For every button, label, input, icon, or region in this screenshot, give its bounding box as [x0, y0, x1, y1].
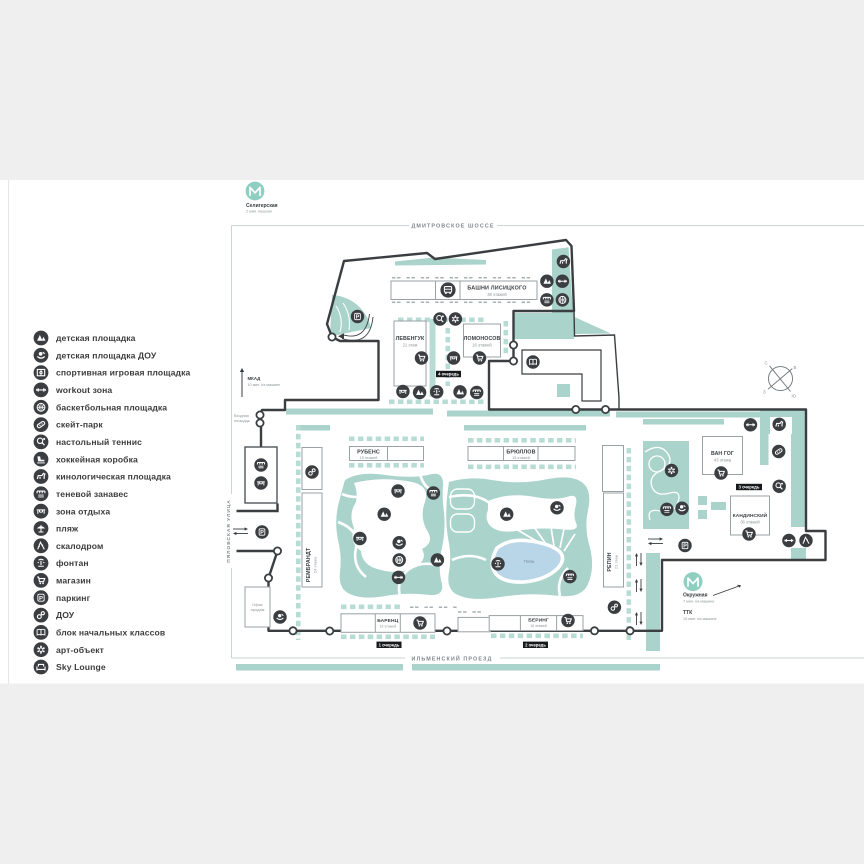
svg-text:21 этаж: 21 этаж	[614, 555, 619, 570]
svg-text:ДОУ: ДОУ	[56, 610, 75, 620]
svg-text:workout зона: workout зона	[55, 385, 112, 395]
svg-text:хоккейная коробка: хоккейная коробка	[56, 454, 138, 464]
svg-text:ДМИТРОВСКОЕ ШОССЕ: ДМИТРОВСКОЕ ШОССЕ	[411, 224, 494, 230]
svg-text:РЕПИН: РЕПИН	[607, 552, 613, 571]
svg-text:2 мин. пешком: 2 мин. пешком	[246, 210, 272, 214]
svg-text:БАРЕНЦ: БАРЕНЦ	[377, 618, 398, 624]
svg-text:З: З	[763, 390, 766, 395]
svg-text:Ю: Ю	[792, 394, 797, 399]
svg-text:ПЯЛОВСКАЯ УЛИЦА: ПЯЛОВСКАЯ УЛИЦА	[226, 499, 232, 563]
svg-text:24 этажа: 24 этажа	[313, 556, 318, 573]
svg-text:спортивная игровая площадка: спортивная игровая площадка	[56, 368, 190, 378]
svg-text:ВАН ГОГ: ВАН ГОГ	[711, 451, 734, 457]
svg-text:детская площадка ДОУ: детская площадка ДОУ	[56, 350, 157, 360]
svg-text:ЛОМОНОСОВ: ЛОМОНОСОВ	[464, 336, 501, 342]
svg-text:С: С	[765, 361, 768, 366]
svg-text:БАШНИ ЛИСИЦКОГО: БАШНИ ЛИСИЦКОГО	[467, 286, 526, 292]
svg-text:баскетбольная площадка: баскетбольная площадка	[56, 402, 167, 412]
svg-text:16 этажей: 16 этажей	[472, 343, 492, 348]
svg-text:15 этажей: 15 этажей	[379, 625, 396, 629]
svg-text:36 этажей: 36 этажей	[740, 520, 760, 525]
svg-text:Окружная: Окружная	[683, 593, 708, 599]
svg-text:фонтан: фонтан	[56, 558, 89, 568]
svg-text:ИЛЬМЕНСКИЙ ПРОЕЗД: ИЛЬМЕНСКИЙ ПРОЕЗД	[412, 655, 493, 663]
svg-text:Входная: Входная	[234, 414, 249, 418]
svg-text:продаж: продаж	[251, 607, 265, 612]
svg-text:БЕРИНГ: БЕРИНГ	[528, 618, 549, 624]
svg-text:Sky Lounge: Sky Lounge	[56, 662, 106, 672]
svg-text:39 этажей: 39 этажей	[487, 292, 507, 297]
svg-text:магазин: магазин	[56, 576, 91, 586]
svg-text:15 этажей: 15 этажей	[512, 456, 530, 460]
svg-text:детская площадка: детская площадка	[56, 333, 136, 343]
svg-text:21 этаж: 21 этаж	[403, 343, 418, 348]
svg-text:блок начальных классов: блок начальных классов	[56, 628, 165, 638]
svg-text:БРЮЛЛОВ: БРЮЛЛОВ	[506, 450, 535, 456]
svg-text:МКАД: МКАД	[248, 376, 262, 381]
svg-text:теневой занавес: теневой занавес	[56, 489, 128, 499]
svg-text:7 мин. на машине: 7 мин. на машине	[683, 600, 714, 604]
svg-text:ТТК: ТТК	[683, 610, 693, 616]
svg-text:ЛЕВЕНГУК: ЛЕВЕНГУК	[396, 336, 425, 342]
svg-text:РУБЕНС: РУБЕНС	[357, 450, 380, 456]
svg-text:кинологическая площадка: кинологическая площадка	[56, 472, 171, 482]
svg-text:скейт-парк: скейт-парк	[56, 420, 103, 430]
svg-text:Селигерская: Селигерская	[246, 203, 278, 209]
svg-text:зона отдыха: зона отдыха	[56, 506, 110, 516]
svg-text:площадь: площадь	[234, 419, 250, 423]
svg-text:В: В	[794, 365, 797, 370]
svg-text:15 этажей: 15 этажей	[360, 456, 378, 460]
svg-text:РЕМБРАНДТ: РЕМБРАНДТ	[306, 547, 312, 582]
svg-text:1 очередь: 1 очередь	[379, 642, 400, 647]
svg-text:пляж: пляж	[56, 524, 79, 534]
svg-text:арт-объект: арт-объект	[56, 645, 104, 655]
svg-text:скалодром: скалодром	[56, 541, 103, 551]
svg-text:2 очередь: 2 очередь	[525, 642, 546, 647]
svg-text:паркинг: паркинг	[56, 593, 91, 603]
svg-text:4 очередь: 4 очередь	[438, 372, 459, 377]
svg-text:43 этажа: 43 этажа	[714, 458, 732, 463]
svg-text:16 этажей: 16 этажей	[530, 624, 547, 628]
svg-text:10 мин. на машине: 10 мин. на машине	[248, 383, 281, 387]
svg-text:3 очередь: 3 очередь	[739, 485, 760, 490]
svg-text:настольный теннис: настольный теннис	[56, 437, 142, 447]
svg-text:Пляж: Пляж	[524, 559, 535, 564]
svg-text:15 мин. на машине: 15 мин. на машине	[683, 617, 717, 621]
